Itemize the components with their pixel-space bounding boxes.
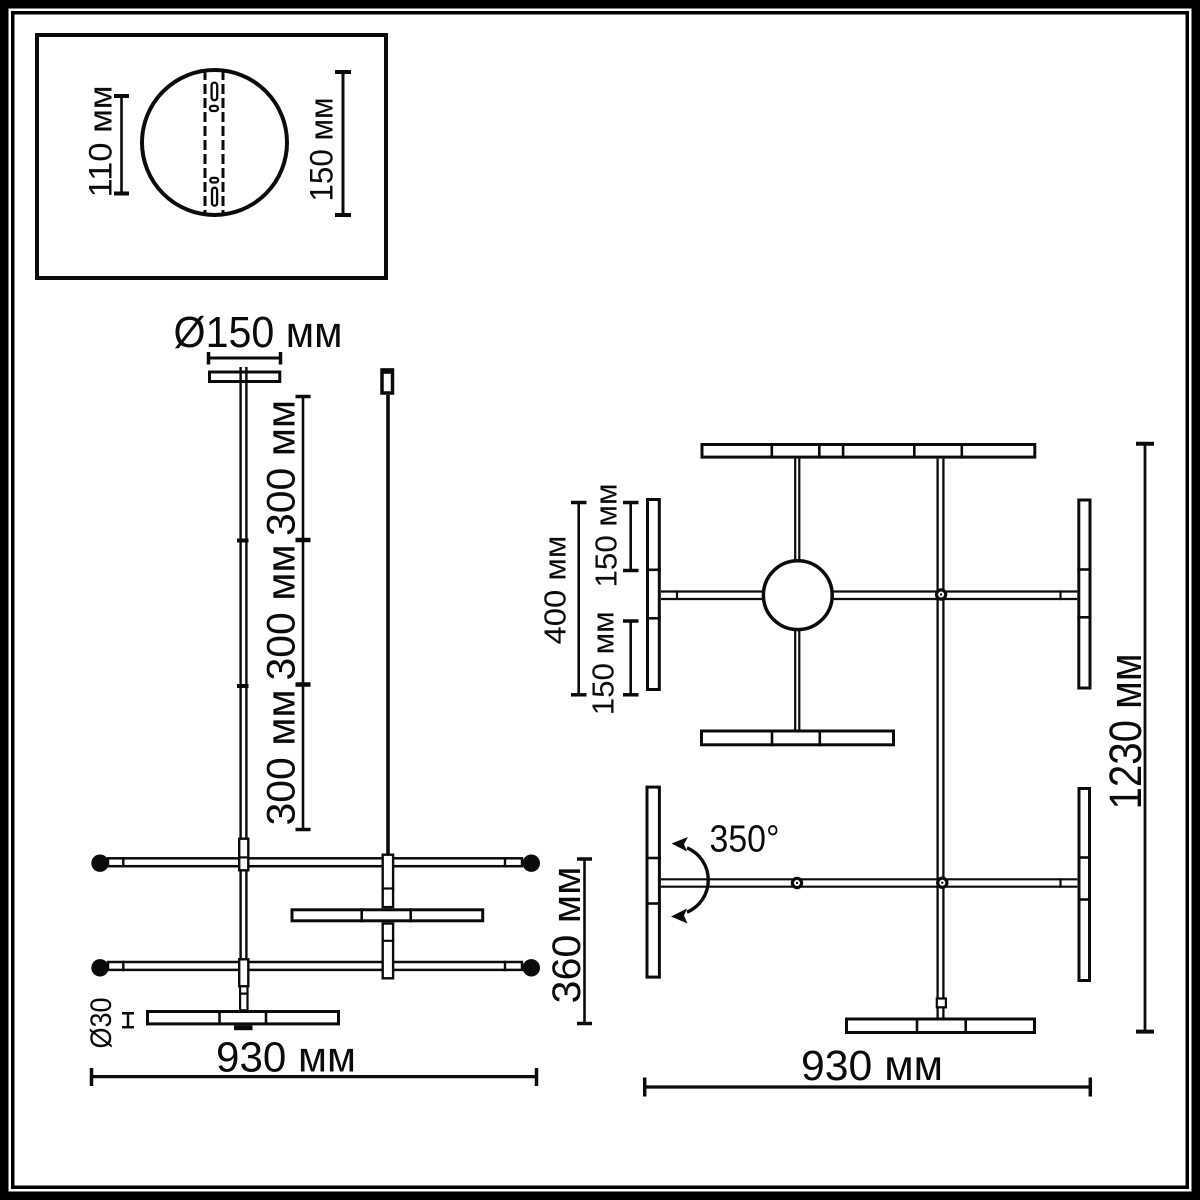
svg-text:350°: 350° <box>710 819 780 861</box>
svg-text:300 мм: 300 мм <box>260 690 304 826</box>
svg-text:930 мм: 930 мм <box>801 1042 943 1090</box>
svg-text:Ø150 мм: Ø150 мм <box>174 308 343 357</box>
svg-text:150 мм: 150 мм <box>590 484 624 588</box>
svg-text:930 мм: 930 мм <box>216 1034 356 1082</box>
svg-text:150 мм: 150 мм <box>304 98 340 202</box>
svg-text:110 мм: 110 мм <box>83 86 119 198</box>
svg-text:Ø30: Ø30 <box>85 998 118 1049</box>
svg-text:300 мм: 300 мм <box>260 545 304 681</box>
svg-text:360 мм: 360 мм <box>545 867 589 1004</box>
svg-text:1230 мм: 1230 мм <box>1100 654 1151 810</box>
svg-text:300 мм: 300 мм <box>260 400 304 536</box>
svg-text:400 мм: 400 мм <box>539 536 573 645</box>
svg-text:150 мм: 150 мм <box>587 611 621 715</box>
